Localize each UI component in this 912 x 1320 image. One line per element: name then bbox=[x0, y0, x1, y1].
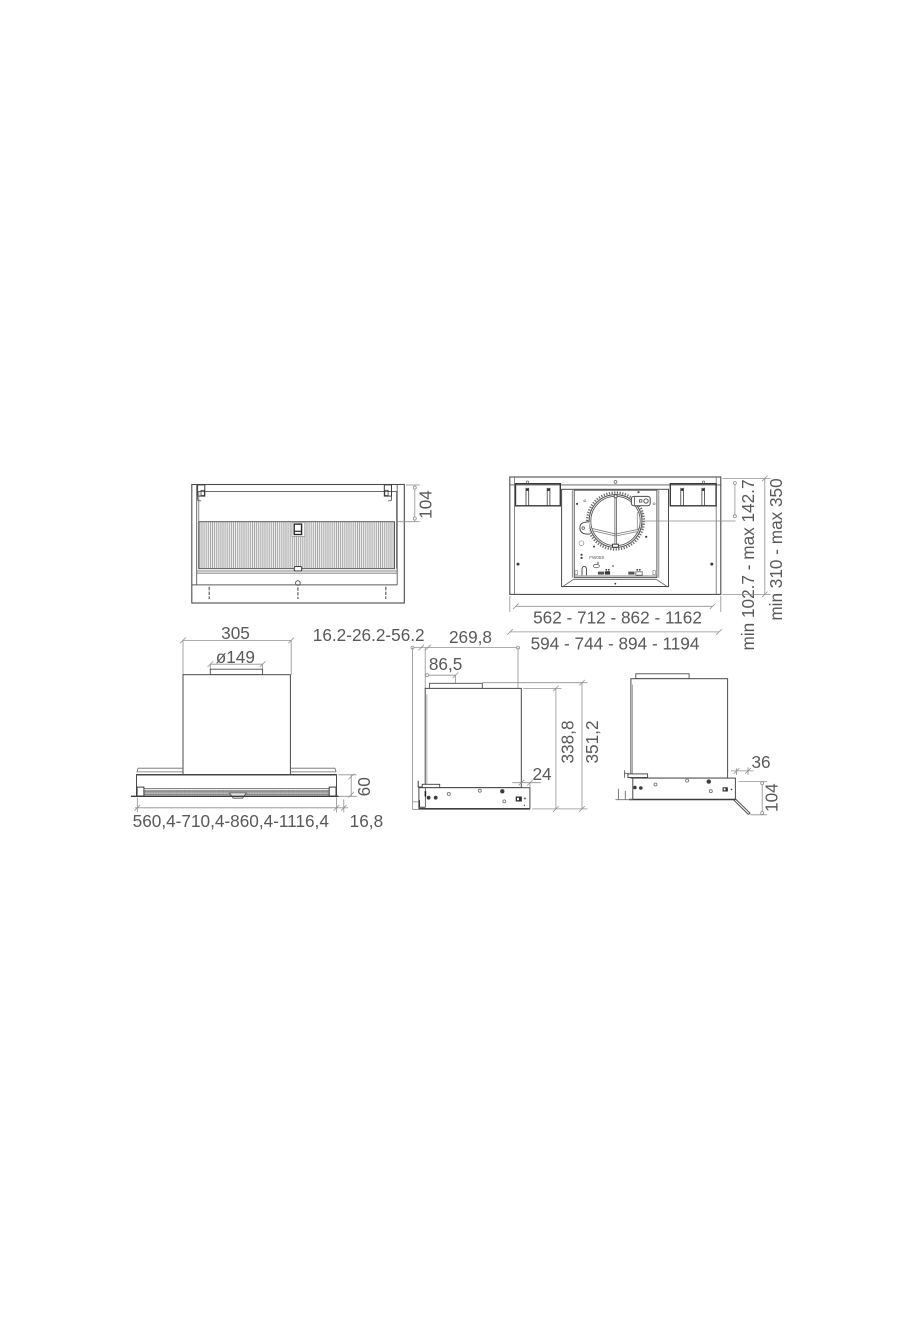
svg-text:60: 60 bbox=[354, 777, 374, 796]
svg-text:min 310 - max 350: min 310 - max 350 bbox=[766, 478, 786, 620]
svg-text:351,2: 351,2 bbox=[582, 720, 602, 763]
svg-text:24: 24 bbox=[532, 764, 552, 784]
svg-text:305: 305 bbox=[221, 623, 250, 643]
svg-text:16.2-26.2-56.2: 16.2-26.2-56.2 bbox=[313, 625, 425, 645]
svg-text:36: 36 bbox=[751, 752, 770, 772]
svg-text:338,8: 338,8 bbox=[557, 720, 577, 763]
svg-text:16,8: 16,8 bbox=[350, 811, 383, 831]
svg-text:560,4-710,4-860,4-1116,4: 560,4-710,4-860,4-1116,4 bbox=[133, 811, 330, 831]
svg-text:562 - 712 - 862 - 1162: 562 - 712 - 862 - 1162 bbox=[533, 608, 702, 628]
svg-text:104: 104 bbox=[415, 490, 435, 519]
svg-text:86,5: 86,5 bbox=[429, 654, 462, 674]
svg-text:FW059: FW059 bbox=[589, 555, 604, 560]
svg-text:min 102.7 - max 142.7: min 102.7 - max 142.7 bbox=[738, 479, 758, 650]
svg-text:594 - 744 - 894 - 1194: 594 - 744 - 894 - 1194 bbox=[531, 633, 700, 653]
svg-text:269,8: 269,8 bbox=[449, 627, 492, 647]
svg-text:104: 104 bbox=[762, 783, 782, 812]
